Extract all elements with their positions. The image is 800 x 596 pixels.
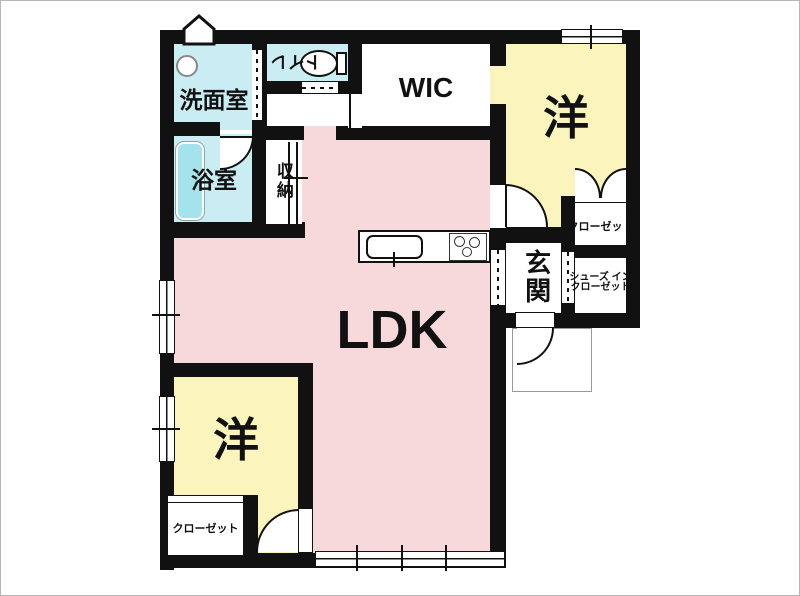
stove-burner-2 — [469, 237, 480, 248]
room-label-bedroom-top: 洋 — [506, 88, 626, 148]
room-label-toilet: トイレ — [264, 48, 328, 74]
room-label-storage: 収納 — [270, 144, 296, 218]
door-leaf-bedroom-bottom — [298, 508, 313, 553]
sliding-door-entrance-left — [491, 250, 505, 305]
room-label-closet-top: クローゼット — [575, 220, 626, 236]
window-left-ldk-tick — [152, 314, 180, 316]
room-label-washroom: 洗面室 — [168, 86, 260, 114]
room-label-ldk: LDK — [322, 296, 462, 364]
opening-hall-ldk — [304, 126, 336, 140]
opening-wic-bedroom — [490, 66, 506, 104]
stove-burner-3 — [462, 247, 472, 257]
closet-bottom-front-line — [168, 495, 243, 503]
wall-toilet-right — [348, 30, 362, 94]
window-bottom-tick-1 — [356, 545, 358, 571]
wall-bathroom-bottom — [160, 222, 305, 238]
window-top-tick — [590, 25, 592, 49]
toilet-tank-icon — [336, 52, 347, 75]
storage-door-line-2 — [296, 142, 298, 224]
room-ldk-left-arm — [168, 236, 308, 376]
bay-vent-icon — [181, 13, 217, 46]
window-bottom-tick-3 — [445, 545, 447, 571]
washbasin-icon — [176, 55, 198, 77]
stove-burner-1 — [454, 236, 465, 247]
window-left-ldk — [159, 280, 175, 354]
room-label-shoes-closet: シューズ イン クローゼット — [573, 268, 628, 298]
window-top — [561, 29, 623, 44]
entrance-door-leaf — [515, 312, 555, 328]
room-label-entrance: 玄関 — [521, 240, 551, 314]
window-bottom-tick-2 — [401, 545, 403, 571]
room-label-closet-bottom: クローゼット — [168, 522, 243, 538]
wall-wic-bottom — [336, 126, 504, 140]
sliding-door-toilet — [302, 82, 338, 93]
opening-bedroom-top-door — [490, 185, 506, 228]
room-label-bedroom-bottom: 洋 — [176, 410, 296, 470]
wall-bedroom2-right — [298, 363, 313, 508]
room-label-wic: WIC — [362, 68, 490, 108]
wic-door-line — [349, 94, 351, 128]
shoes-closet-line2: クローゼット — [571, 283, 631, 294]
floor-plan: 洗面室 トイレ 浴室 収納 WIC 洋 クローゼット 玄関 シューズ イン クロ… — [0, 0, 800, 596]
wall-hall-ldk-left — [252, 126, 304, 140]
window-bottom-ldk — [315, 551, 505, 567]
room-washroom — [168, 40, 260, 130]
wall-washroom-bathroom — [160, 122, 220, 136]
room-label-bathroom: 浴室 — [168, 166, 260, 194]
wall-bedroom2-top — [160, 363, 313, 377]
kitchen-faucet-icon — [393, 252, 395, 267]
